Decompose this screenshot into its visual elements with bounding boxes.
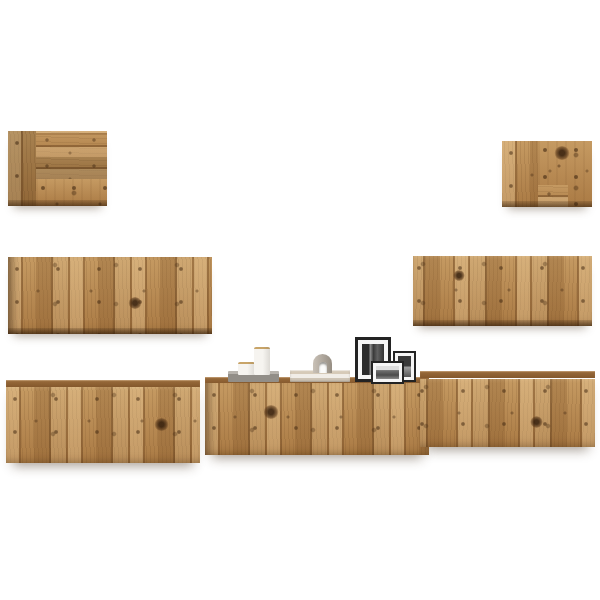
wood-knot xyxy=(263,405,279,419)
cabinet-plank-band xyxy=(36,131,107,157)
photo-frame-small xyxy=(371,361,404,384)
cabinet-bottom-edge xyxy=(502,201,592,207)
cabinet-bottom-edge xyxy=(413,320,592,326)
cabinet-bottom-edge xyxy=(8,328,212,334)
framed-photo xyxy=(376,366,399,379)
cabinet-front xyxy=(205,383,429,455)
cabinet-top-edge xyxy=(6,380,200,387)
tv-bench-bottom-center xyxy=(205,377,429,455)
wall-cabinet-top-left xyxy=(8,131,107,206)
cabinet-front xyxy=(413,256,592,326)
cabinet-top-edge xyxy=(420,371,595,378)
cabinet-front xyxy=(6,387,200,463)
wood-knot xyxy=(154,418,169,431)
arch-ornament-hole xyxy=(319,362,327,373)
cabinet-plank-band xyxy=(36,157,107,179)
wood-knot xyxy=(530,416,543,428)
cabinet-plank-strip xyxy=(8,131,36,206)
cabinet-front xyxy=(420,379,595,447)
cabinet-bottom-edge xyxy=(8,200,107,206)
wall-cabinet-top-right xyxy=(502,141,592,207)
wood-knot xyxy=(453,270,465,281)
tv-bench-bottom-right xyxy=(420,371,595,447)
tv-bench-bottom-left xyxy=(6,380,200,463)
cabinet-plank-strip xyxy=(502,141,538,207)
wood-knot xyxy=(554,146,570,160)
arch-ornament xyxy=(313,354,332,373)
wall-cabinet-middle-right xyxy=(413,256,592,326)
wood-knot xyxy=(128,297,142,309)
cabinet-front xyxy=(8,257,212,334)
candle-tall xyxy=(254,347,270,375)
candle-short xyxy=(238,362,255,375)
wall-cabinet-middle-left xyxy=(8,257,212,334)
product-photo-stage xyxy=(0,0,600,600)
